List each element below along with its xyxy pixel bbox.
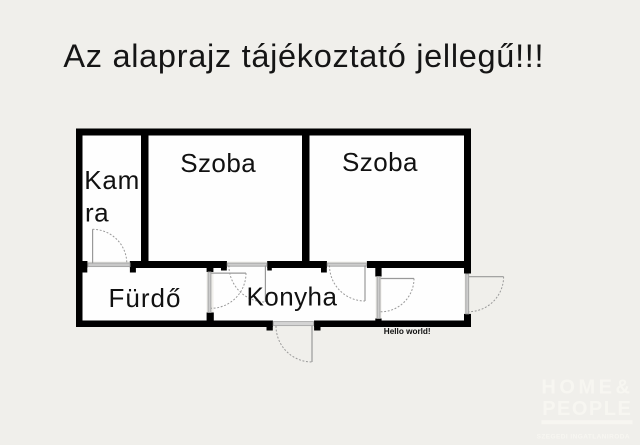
svg-text:Konyha: Konyha (247, 282, 338, 312)
svg-text:Az alaprajz tájékoztató jelleg: Az alaprajz tájékoztató jellegű!!! (63, 38, 544, 74)
svg-text:Szoba: Szoba (180, 148, 256, 178)
svg-text:ra: ra (85, 197, 109, 227)
svg-text:Kam: Kam (84, 165, 140, 195)
svg-text:PEOPLE: PEOPLE (542, 398, 631, 420)
svg-text:Fürdő: Fürdő (109, 283, 182, 313)
svg-text:Hello world!: Hello world! (384, 327, 431, 336)
svg-text:SZEGEDI INGATLANIRODA: SZEGEDI INGATLANIRODA (537, 434, 630, 441)
svg-text:HOME&: HOME& (541, 376, 630, 398)
svg-text:Szoba: Szoba (342, 147, 418, 177)
